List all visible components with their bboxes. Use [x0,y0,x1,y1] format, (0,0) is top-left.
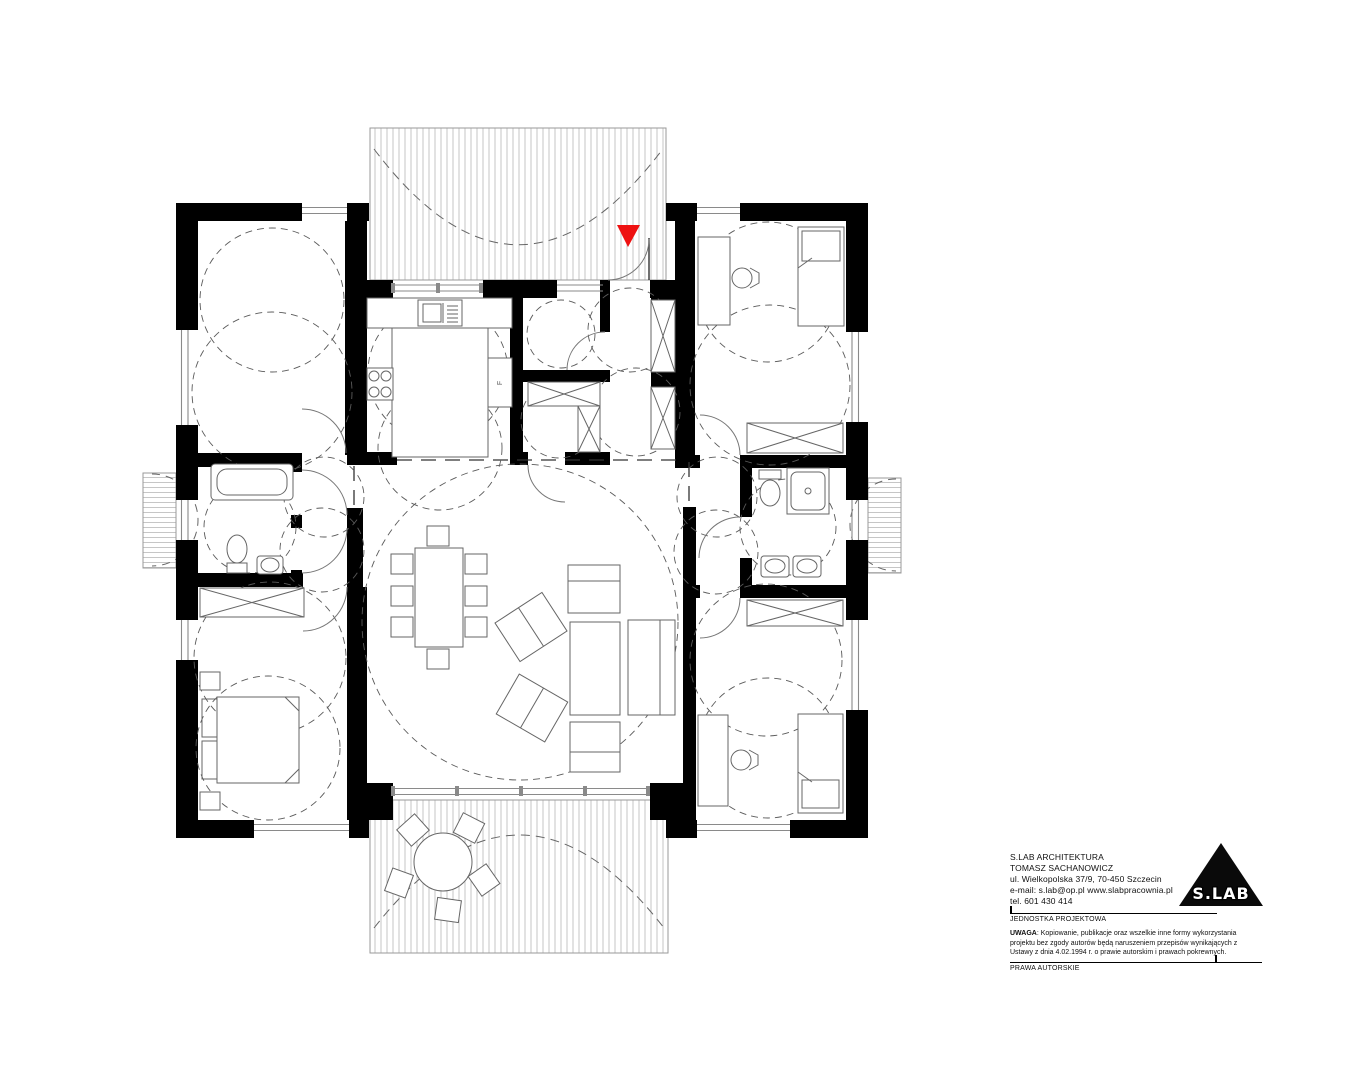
toilet [227,535,247,573]
desk [698,237,730,325]
dining-table [415,548,463,647]
dining-chair [465,554,487,574]
terrace-chair [435,897,462,922]
copyright-notice: UWAGA: Kopiowanie, publikacje oraz wszel… [1010,929,1250,958]
single-bed [798,714,843,813]
copyright-label: PRAWA AUTORSKIE [1010,965,1262,972]
titleblock-rule-1 [1010,913,1217,914]
kitchen-stove [367,368,393,400]
dining-chair [391,617,413,637]
slab-logo: S.LAB [1176,840,1266,910]
bathtub [211,464,293,500]
titleblock-rule-2 [1010,962,1262,963]
washbasin [761,556,789,577]
window-bedroom-br-bottom [697,825,790,831]
kitchen-sink [418,300,462,326]
dining-table-group [391,526,487,669]
notice-label: UWAGA [1010,930,1037,937]
window-wc [557,285,603,291]
door-wc [567,332,605,370]
window-bedroom-tr-right [852,332,859,422]
nightstand [200,672,220,690]
desk-chair [732,268,759,288]
notice-text: : Kopiowanie, publikacje oraz wszelkie i… [1010,930,1237,956]
bathroom-left [211,464,293,574]
door-bedroom-tr [700,415,740,455]
floorplan-sheet: F [0,0,1350,1080]
hall-wardrobe [651,387,675,449]
nightstand [200,792,220,810]
dining-chair [427,526,449,546]
sofa-module [568,565,620,613]
door-bedroom-br [700,598,740,638]
bedroom-top-right [698,227,844,453]
door-bathroom-left-lower [302,528,347,573]
shower [787,468,829,514]
living-room [391,526,675,772]
bedroom-bottom-right [698,600,843,813]
desk-chair [731,750,758,770]
sofa [570,622,620,715]
dining-chair [427,649,449,669]
dining-chair [465,617,487,637]
window-bathroom-left [182,500,189,540]
kitchen-fridge: F [488,358,512,407]
fridge-label: F [497,381,504,385]
terrace-bottom [370,800,668,953]
kitchen: F [367,298,512,457]
window-kitchen [391,283,483,293]
door-bathroom-right [699,517,740,558]
dining-chair [391,554,413,574]
door-bedroom-tl [302,409,346,453]
closet-wardrobe [528,382,600,406]
sofa-right [628,620,675,715]
window-bedroom-bl-bottom [254,825,349,831]
window-bedroom-bl-left [182,620,189,660]
toilet [759,470,781,506]
wardrobe [747,600,843,626]
single-bed [798,227,844,326]
hall-wardrobe [651,300,675,372]
armchair [496,674,567,742]
window-bedroom-tl-left [182,330,189,425]
armchair [495,592,567,661]
terrace-top [370,128,666,280]
door-closet [528,465,565,502]
window-bathroom-right [852,500,859,540]
window-bedroom-br-right [852,620,859,710]
design-unit-label: JEDNOSTKA PROJEKTOWA [1010,916,1262,923]
pillow [202,699,217,737]
bedroom-bottom-left [200,588,304,810]
dining-chair [465,586,487,606]
sofa-module [570,722,620,772]
double-bed [202,697,299,783]
bathroom-right [759,468,829,577]
window-bedroom-tl-top [302,208,347,214]
logo-text: S.LAB [1192,884,1249,903]
sofa-group [495,565,675,772]
washbasin [257,556,283,574]
door-bathroom-left-upper [302,470,347,515]
wardrobe [747,423,843,453]
pillow [202,741,217,779]
window-living-sliding [391,786,650,796]
washbasin [793,556,821,577]
dining-chair [391,586,413,606]
wardrobe [200,588,304,617]
storage-closet [528,382,600,452]
kitchen-peninsula [392,328,488,457]
desk [698,715,728,806]
window-bedroom-tr-top [697,208,740,214]
closet-wardrobe [578,406,600,452]
